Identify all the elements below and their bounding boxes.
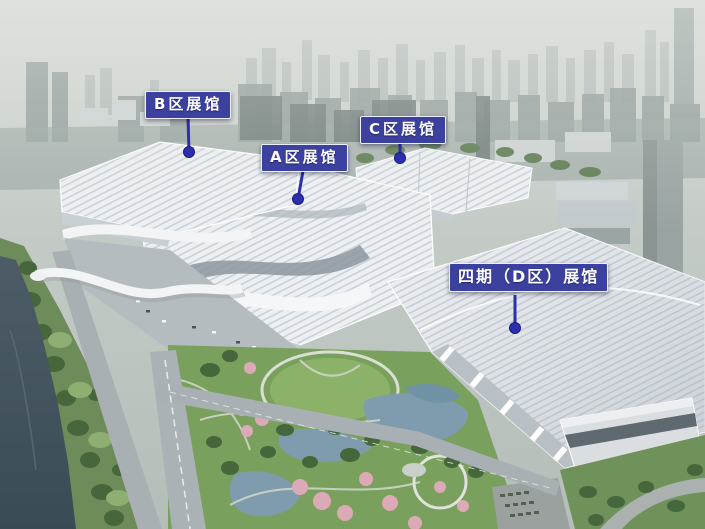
scene-illustration	[0, 0, 705, 529]
aerial-view: B区展馆A区展馆C区展馆四期（D区）展馆	[0, 0, 705, 529]
haze-overlay	[0, 0, 705, 230]
